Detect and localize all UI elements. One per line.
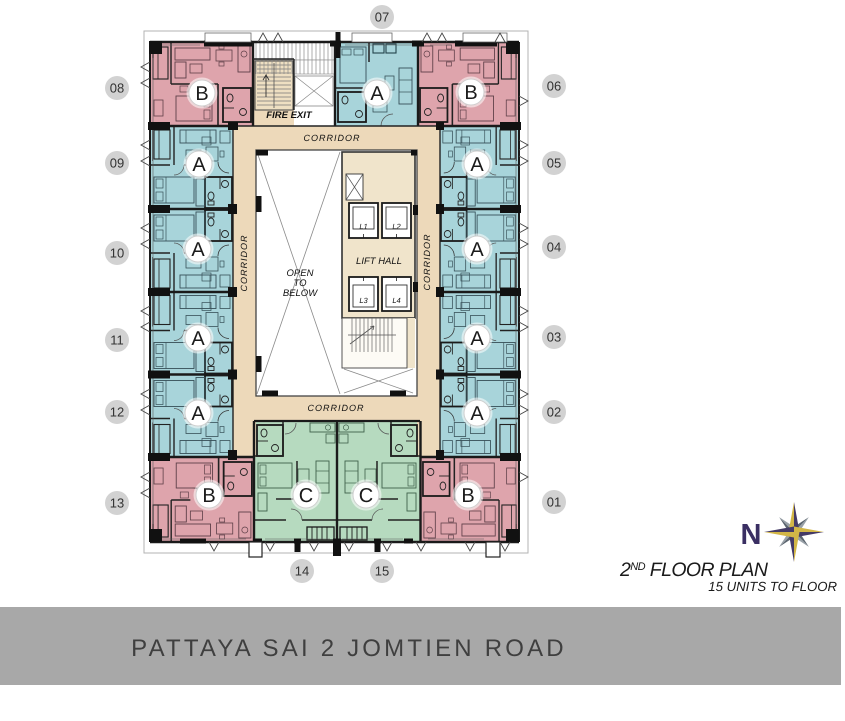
svg-text:15 UNITS TO FLOOR: 15 UNITS TO FLOOR <box>708 579 837 594</box>
svg-text:01: 01 <box>547 495 561 510</box>
svg-text:FIRE EXIT: FIRE EXIT <box>266 110 313 121</box>
svg-text:13: 13 <box>110 496 124 511</box>
svg-text:L1: L1 <box>359 222 367 231</box>
svg-text:11: 11 <box>110 333 124 348</box>
svg-text:BELOW: BELOW <box>283 288 318 299</box>
svg-text:L2: L2 <box>392 222 401 231</box>
svg-text:L3: L3 <box>359 296 368 305</box>
svg-text:B: B <box>195 83 208 105</box>
svg-text:C: C <box>299 485 313 507</box>
svg-text:B: B <box>464 82 477 104</box>
svg-text:A: A <box>192 154 206 176</box>
svg-text:CORRIDOR: CORRIDOR <box>304 133 361 143</box>
svg-text:10: 10 <box>110 246 124 261</box>
svg-text:15: 15 <box>375 564 389 579</box>
svg-text:N: N <box>741 519 762 551</box>
svg-text:A: A <box>370 83 384 105</box>
svg-text:12: 12 <box>110 405 124 420</box>
svg-text:09: 09 <box>110 156 124 171</box>
svg-text:02: 02 <box>547 405 561 420</box>
svg-text:B: B <box>461 485 474 507</box>
svg-text:A: A <box>470 154 484 176</box>
svg-text:A: A <box>470 328 484 350</box>
svg-text:05: 05 <box>547 156 561 171</box>
svg-text:08: 08 <box>110 81 124 96</box>
svg-text:B: B <box>202 485 215 507</box>
svg-text:CORRIDOR: CORRIDOR <box>308 403 365 413</box>
svg-text:A: A <box>470 403 484 425</box>
svg-text:L4: L4 <box>392 296 400 305</box>
svg-text:03: 03 <box>547 330 561 345</box>
svg-text:A: A <box>191 328 205 350</box>
svg-text:PATTAYA SAI 2 JOMTIEN ROAD: PATTAYA SAI 2 JOMTIEN ROAD <box>131 635 567 662</box>
svg-text:C: C <box>359 485 373 507</box>
svg-text:07: 07 <box>375 10 389 25</box>
svg-text:04: 04 <box>547 240 561 255</box>
svg-text:LIFT HALL: LIFT HALL <box>356 256 402 267</box>
svg-text:A: A <box>191 403 205 425</box>
svg-text:CORRIDOR: CORRIDOR <box>239 235 249 292</box>
svg-text:14: 14 <box>295 564 309 579</box>
svg-text:CORRIDOR: CORRIDOR <box>422 234 432 291</box>
svg-text:A: A <box>470 239 484 261</box>
svg-text:A: A <box>191 239 205 261</box>
svg-text:06: 06 <box>547 79 561 94</box>
